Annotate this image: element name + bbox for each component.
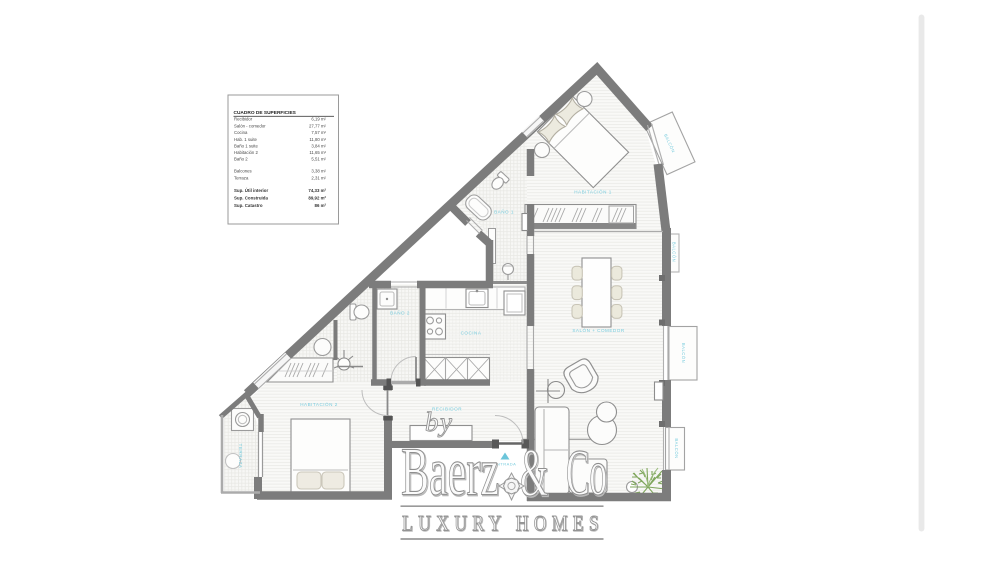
svg-text:BALCÓN: BALCÓN bbox=[674, 438, 679, 458]
svg-text:2,31 m²: 2,31 m² bbox=[311, 175, 326, 180]
svg-text:COCINA: COCINA bbox=[461, 331, 482, 336]
svg-text:Salón - comedor: Salón - comedor bbox=[234, 123, 266, 128]
svg-text:Recibidor: Recibidor bbox=[234, 116, 253, 121]
svg-text:BALCÓN: BALCÓN bbox=[681, 343, 686, 363]
svg-text:Sup. Útil interior: Sup. Útil interior bbox=[234, 188, 268, 193]
svg-text:6,19 m²: 6,19 m² bbox=[311, 116, 326, 121]
svg-text:7,57 m²: 7,57 m² bbox=[311, 130, 326, 135]
svg-text:BALCÓN: BALCÓN bbox=[672, 242, 677, 262]
svg-text:74,33 m²: 74,33 m² bbox=[308, 188, 326, 193]
svg-text:LUXURY HOMES: LUXURY HOMES bbox=[402, 511, 604, 536]
svg-text:Habitación 2: Habitación 2 bbox=[234, 150, 258, 155]
svg-text:CUADRO DE SUPERFICIES: CUADRO DE SUPERFICIES bbox=[234, 110, 297, 116]
svg-text:11,80 m²: 11,80 m² bbox=[309, 137, 326, 142]
svg-text:SALÓN + COMEDOR: SALÓN + COMEDOR bbox=[572, 327, 624, 333]
svg-text:Baerz: Baerz bbox=[401, 434, 499, 510]
svg-text:5,51 m²: 5,51 m² bbox=[311, 156, 326, 161]
svg-text:&: & bbox=[520, 435, 548, 511]
svg-text:HABITACIÓN 2: HABITACIÓN 2 bbox=[300, 401, 338, 407]
svg-text:TERRAZA: TERRAZA bbox=[238, 444, 243, 469]
svg-text:86 m²: 86 m² bbox=[315, 203, 327, 208]
svg-text:Sup. Construida: Sup. Construida bbox=[234, 196, 268, 201]
svg-text:27,77 m²: 27,77 m² bbox=[309, 123, 327, 128]
svg-text:3,84 m²: 3,84 m² bbox=[311, 143, 326, 148]
svg-text:HABITACIÓN 1: HABITACIÓN 1 bbox=[574, 189, 612, 195]
svg-text:11,65 m²: 11,65 m² bbox=[309, 150, 326, 155]
svg-text:Balcones: Balcones bbox=[234, 168, 252, 173]
svg-text:Co: Co bbox=[566, 437, 607, 510]
svg-text:Terraza: Terraza bbox=[234, 175, 249, 180]
svg-text:BAÑO 1: BAÑO 1 bbox=[494, 209, 514, 215]
svg-text:3,38 m²: 3,38 m² bbox=[311, 168, 326, 173]
svg-text:Sup. Catastro: Sup. Catastro bbox=[234, 203, 263, 208]
svg-text:BAÑO 2: BAÑO 2 bbox=[390, 310, 410, 316]
svg-text:Baño 2: Baño 2 bbox=[234, 156, 248, 161]
svg-text:Hab. 1 suite: Hab. 1 suite bbox=[234, 137, 258, 142]
svg-text:Baño 1 suite: Baño 1 suite bbox=[234, 143, 258, 148]
svg-text:89,92 m²: 89,92 m² bbox=[308, 196, 326, 201]
svg-text:Cocina: Cocina bbox=[234, 130, 248, 135]
